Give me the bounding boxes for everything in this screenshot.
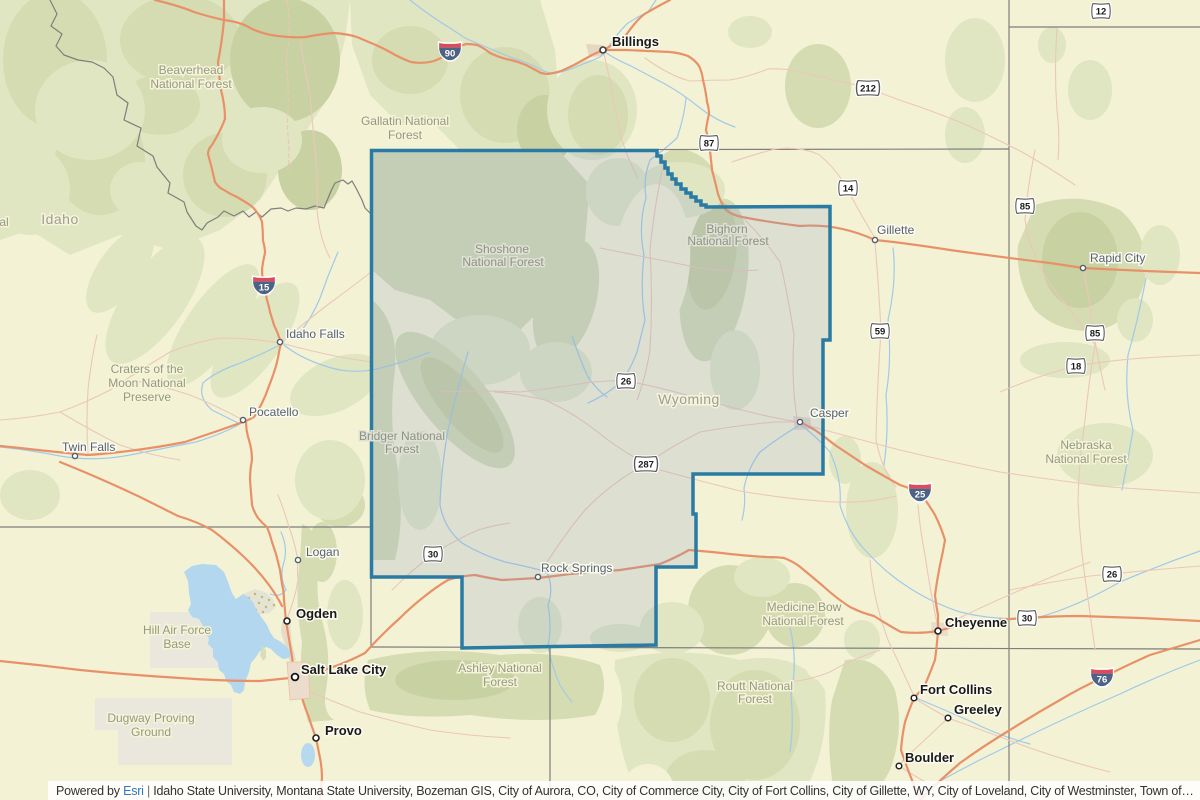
svg-text:National Forest: National Forest bbox=[150, 77, 232, 91]
svg-text:Forest: Forest bbox=[385, 442, 420, 456]
svg-text:Fort Collins: Fort Collins bbox=[920, 682, 992, 697]
svg-text:26: 26 bbox=[621, 377, 632, 388]
svg-text:90: 90 bbox=[445, 49, 456, 60]
svg-text:15: 15 bbox=[259, 283, 270, 294]
svg-text:Bridger National: Bridger National bbox=[359, 429, 445, 443]
svg-text:Rapid City: Rapid City bbox=[1090, 251, 1145, 265]
svg-text:30: 30 bbox=[1022, 614, 1033, 625]
svg-text:Salt Lake City: Salt Lake City bbox=[301, 662, 387, 677]
svg-text:Craters of the: Craters of the bbox=[111, 362, 184, 376]
svg-text:Powered by Esri | Idaho State: Powered by Esri | Idaho State University… bbox=[56, 784, 1194, 798]
svg-text:14: 14 bbox=[843, 184, 854, 195]
svg-text:59: 59 bbox=[875, 327, 886, 338]
svg-text:Greeley: Greeley bbox=[954, 702, 1002, 717]
svg-text:National Forest: National Forest bbox=[687, 234, 769, 248]
svg-text:Boulder: Boulder bbox=[905, 750, 954, 765]
svg-text:25: 25 bbox=[915, 490, 926, 501]
svg-text:Hill Air Force: Hill Air Force bbox=[143, 623, 211, 637]
svg-text:National Forest: National Forest bbox=[1045, 452, 1127, 466]
svg-text:Billings: Billings bbox=[612, 34, 659, 49]
svg-text:Ogden: Ogden bbox=[296, 606, 337, 621]
svg-text:Moon National: Moon National bbox=[108, 376, 185, 390]
svg-text:212: 212 bbox=[860, 84, 876, 95]
svg-text:Gallatin National: Gallatin National bbox=[361, 114, 449, 128]
svg-text:Forest: Forest bbox=[738, 692, 773, 706]
svg-text:al: al bbox=[0, 215, 9, 229]
svg-text:Provo: Provo bbox=[325, 723, 362, 738]
svg-text:Idaho: Idaho bbox=[41, 211, 79, 227]
svg-text:Forest: Forest bbox=[388, 128, 423, 142]
svg-text:Idaho Falls: Idaho Falls bbox=[286, 327, 345, 341]
svg-text:Ground: Ground bbox=[131, 725, 171, 739]
svg-text:26: 26 bbox=[1107, 570, 1118, 581]
svg-text:Base: Base bbox=[163, 637, 191, 651]
svg-text:Ashley National: Ashley National bbox=[458, 661, 541, 675]
svg-text:12: 12 bbox=[1096, 7, 1107, 18]
svg-text:30: 30 bbox=[428, 550, 439, 561]
svg-text:76: 76 bbox=[1097, 675, 1108, 686]
svg-text:87: 87 bbox=[704, 139, 715, 150]
svg-text:85: 85 bbox=[1020, 202, 1031, 213]
svg-text:18: 18 bbox=[1071, 362, 1082, 373]
svg-text:National Forest: National Forest bbox=[462, 255, 544, 269]
svg-text:Nebraska: Nebraska bbox=[1060, 438, 1112, 452]
svg-text:National Forest: National Forest bbox=[762, 614, 844, 628]
svg-text:Preserve: Preserve bbox=[123, 390, 171, 404]
svg-text:Routt National: Routt National bbox=[717, 679, 793, 693]
svg-text:Cheyenne: Cheyenne bbox=[945, 615, 1007, 630]
svg-text:Medicine Bow: Medicine Bow bbox=[767, 600, 842, 614]
svg-text:Forest: Forest bbox=[483, 675, 518, 689]
svg-text:Rock Springs: Rock Springs bbox=[541, 561, 612, 575]
svg-text:Casper: Casper bbox=[810, 406, 849, 420]
svg-text:Shoshone: Shoshone bbox=[475, 242, 529, 256]
svg-text:Logan: Logan bbox=[306, 545, 339, 559]
svg-text:Pocatello: Pocatello bbox=[249, 405, 299, 419]
svg-text:287: 287 bbox=[638, 460, 654, 471]
svg-text:Twin Falls: Twin Falls bbox=[62, 440, 115, 454]
svg-text:85: 85 bbox=[1090, 329, 1101, 340]
svg-text:Gillette: Gillette bbox=[877, 223, 915, 237]
svg-text:Wyoming: Wyoming bbox=[658, 391, 720, 407]
svg-text:Beaverhead: Beaverhead bbox=[159, 63, 224, 77]
svg-text:Dugway Proving: Dugway Proving bbox=[107, 711, 194, 725]
